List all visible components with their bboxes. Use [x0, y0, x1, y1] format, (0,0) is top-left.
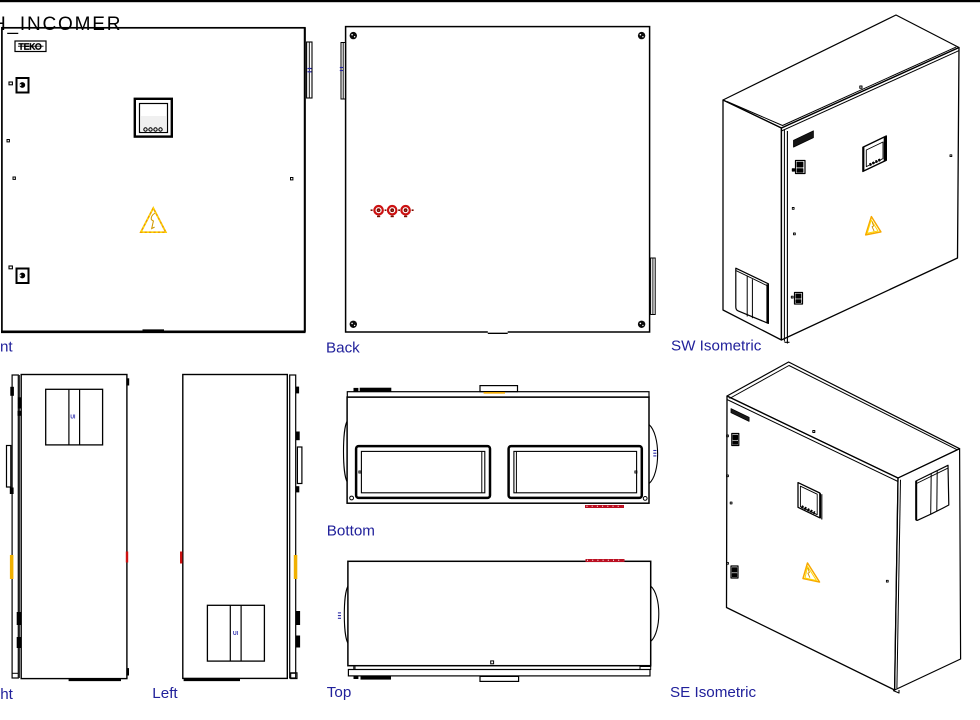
svg-text:SE Isometric: SE Isometric	[670, 684, 756, 701]
svg-text:Bottom: Bottom	[327, 523, 375, 540]
svg-text:UI: UI	[70, 415, 76, 421]
svg-text:Back: Back	[326, 340, 360, 357]
svg-text:Top: Top	[327, 684, 352, 701]
svg-text:H_INCOMER: H_INCOMER	[0, 14, 122, 35]
svg-text:Right: Right	[0, 686, 14, 703]
svg-text:UI: UI	[233, 631, 239, 637]
svg-text:Front: Front	[0, 338, 13, 355]
svg-text:SW Isometric: SW Isometric	[671, 338, 762, 355]
svg-text:Left: Left	[152, 685, 178, 702]
